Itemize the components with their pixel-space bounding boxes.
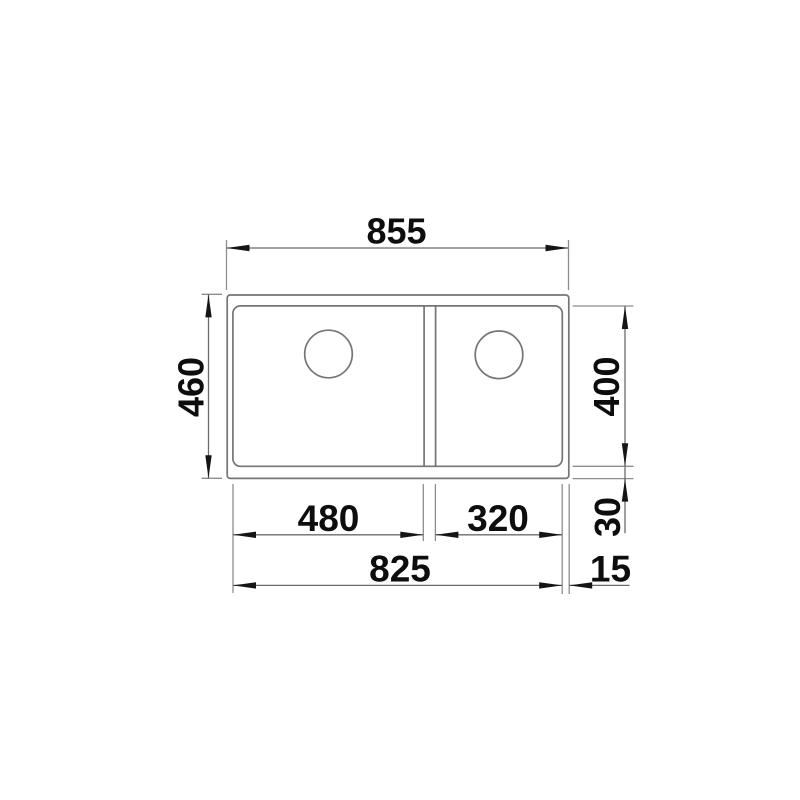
svg-text:480: 480 <box>298 498 360 539</box>
svg-text:825: 825 <box>369 549 431 590</box>
svg-text:460: 460 <box>171 357 212 417</box>
svg-text:320: 320 <box>467 498 529 539</box>
svg-text:30: 30 <box>587 497 628 537</box>
svg-text:15: 15 <box>590 549 631 590</box>
svg-text:400: 400 <box>586 356 627 416</box>
svg-text:855: 855 <box>366 211 426 252</box>
